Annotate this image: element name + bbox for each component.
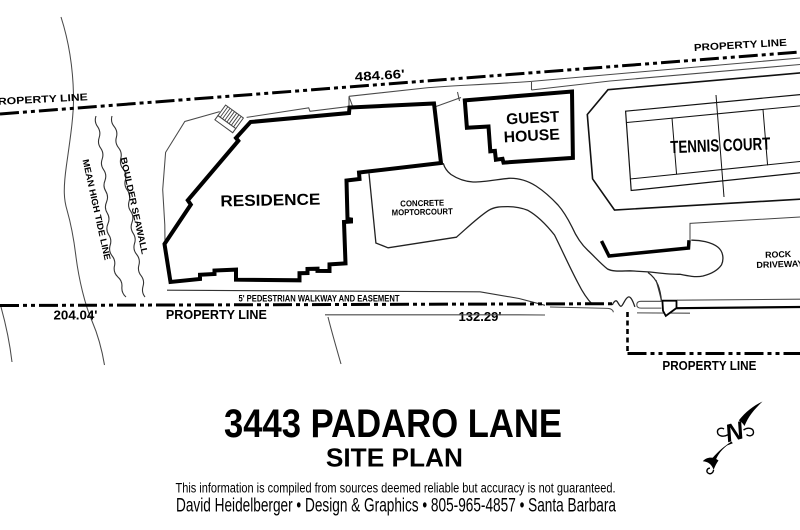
svg-text:RESIDENCE: RESIDENCE (220, 191, 321, 210)
svg-text:132.29': 132.29' (459, 309, 502, 324)
svg-text:PROPERTY LINE: PROPERTY LINE (662, 358, 756, 373)
svg-text:5' PEDESTRIAN WALKWAY AND EASE: 5' PEDESTRIAN WALKWAY AND EASEMENT (239, 294, 400, 304)
svg-text:204.04': 204.04' (54, 309, 98, 323)
svg-text:This information is compiled f: This information is compiled from source… (176, 481, 616, 496)
svg-text:TENNIS COURT: TENNIS COURT (670, 133, 771, 157)
svg-text:PROPERTY LINE: PROPERTY LINE (166, 307, 267, 322)
svg-text:SITE PLAN: SITE PLAN (326, 443, 463, 473)
svg-text:3443 PADARO LANE: 3443 PADARO LANE (224, 402, 562, 446)
svg-text:David Heidelberger • Design &: David Heidelberger • Design & Graphics •… (176, 496, 616, 517)
svg-text:MOPTORCOURT: MOPTORCOURT (392, 206, 454, 217)
svg-text:DRIVEWAY: DRIVEWAY (756, 258, 800, 270)
svg-text:GUEST: GUEST (506, 109, 560, 129)
svg-text:HOUSE: HOUSE (503, 126, 560, 146)
